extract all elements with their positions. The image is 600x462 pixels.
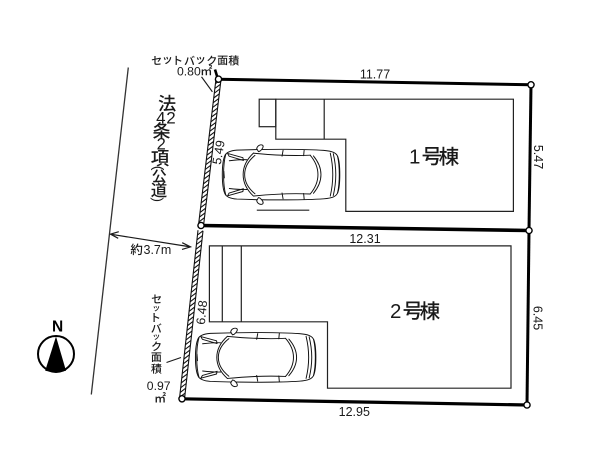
svg-text:12.31: 12.31 xyxy=(349,232,380,246)
svg-text:1: 1 xyxy=(409,145,420,168)
svg-text:0.97: 0.97 xyxy=(147,379,171,393)
svg-text:2: 2 xyxy=(390,300,401,323)
svg-text:0.80: 0.80 xyxy=(177,64,201,78)
svg-text:12.95: 12.95 xyxy=(339,405,370,419)
svg-text:5.47: 5.47 xyxy=(531,145,545,169)
svg-text:3.7m: 3.7m xyxy=(144,243,172,257)
svg-text:): ) xyxy=(151,197,167,202)
svg-text:6.48: 6.48 xyxy=(194,300,210,326)
svg-text:N: N xyxy=(52,318,63,335)
svg-text:(: ( xyxy=(151,166,167,171)
svg-text:6.45: 6.45 xyxy=(531,306,545,330)
svg-text:11.77: 11.77 xyxy=(360,67,390,81)
